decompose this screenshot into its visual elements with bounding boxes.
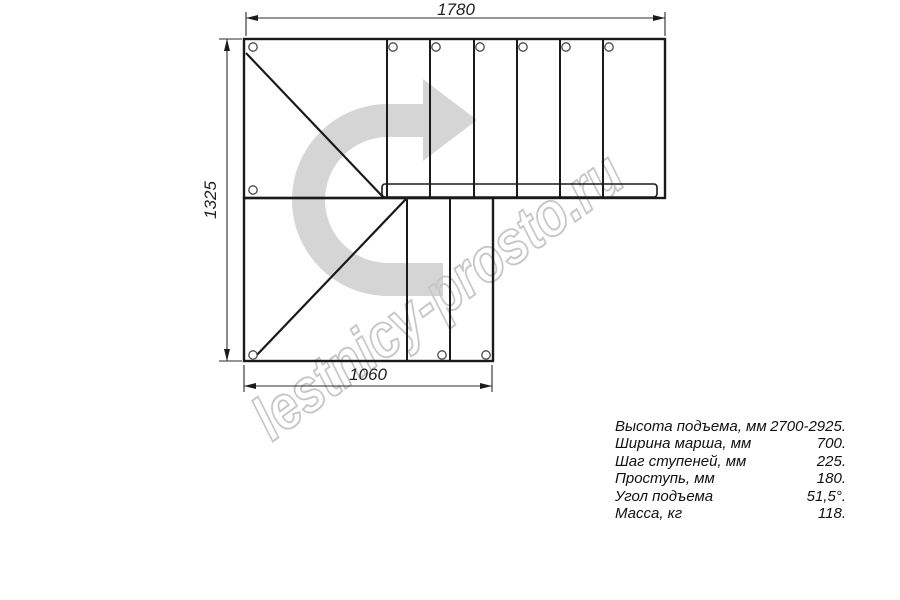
arrowhead-icon [246, 15, 258, 21]
spec-value: 180. [817, 470, 846, 487]
screw-hole-marker [438, 351, 446, 359]
arrowhead-icon [480, 383, 492, 389]
spec-row-angle: Угол подъема 51,5°. [615, 488, 846, 505]
spec-label: Ширина марша, мм [615, 435, 751, 452]
screw-hole-marker [476, 43, 484, 51]
screw-hole-marker [249, 43, 257, 51]
screw-hole-marker [249, 351, 257, 359]
spec-row-tread: Проступь, мм 180. [615, 470, 846, 487]
spec-label: Масса, кг [615, 505, 682, 522]
arrowhead-icon [244, 383, 256, 389]
spec-label: Угол подъема [615, 488, 713, 505]
screw-hole-marker [249, 186, 257, 194]
spec-value: 2700-2925. [770, 418, 846, 435]
staircase-drawing-page: lestnicy-prosto.ru [0, 0, 900, 600]
screw-hole-marker [482, 351, 490, 359]
arrowhead-icon [224, 39, 230, 51]
screw-hole-marker [605, 43, 613, 51]
dimension-label-left: 1325 [201, 181, 220, 219]
screw-hole-marker [519, 43, 527, 51]
spec-value: 700. [817, 435, 846, 452]
dimension-label-top: 1780 [437, 0, 475, 19]
spec-value: 118. [818, 505, 846, 522]
arrowhead-icon [224, 349, 230, 361]
spec-value: 225. [817, 453, 846, 470]
screw-hole-marker [432, 43, 440, 51]
dimension-label-bottom: 1060 [349, 365, 387, 384]
specifications-table: Высота подъема, мм 2700-2925. Ширина мар… [615, 418, 846, 522]
arrowhead-icon [653, 15, 665, 21]
screw-hole-marker [562, 43, 570, 51]
spec-value: 51,5°. [807, 488, 846, 505]
spec-label: Высота подъема, мм [615, 418, 767, 435]
spec-row-step-pitch: Шаг ступеней, мм 225. [615, 453, 846, 470]
spec-row-height: Высота подъема, мм 2700-2925. [615, 418, 846, 435]
spec-label: Проступь, мм [615, 470, 715, 487]
spec-row-mass: Масса, кг 118. [615, 505, 846, 522]
spec-row-flight-width: Ширина марша, мм 700. [615, 435, 846, 452]
spec-label: Шаг ступеней, мм [615, 453, 746, 470]
screw-hole-marker [389, 43, 397, 51]
